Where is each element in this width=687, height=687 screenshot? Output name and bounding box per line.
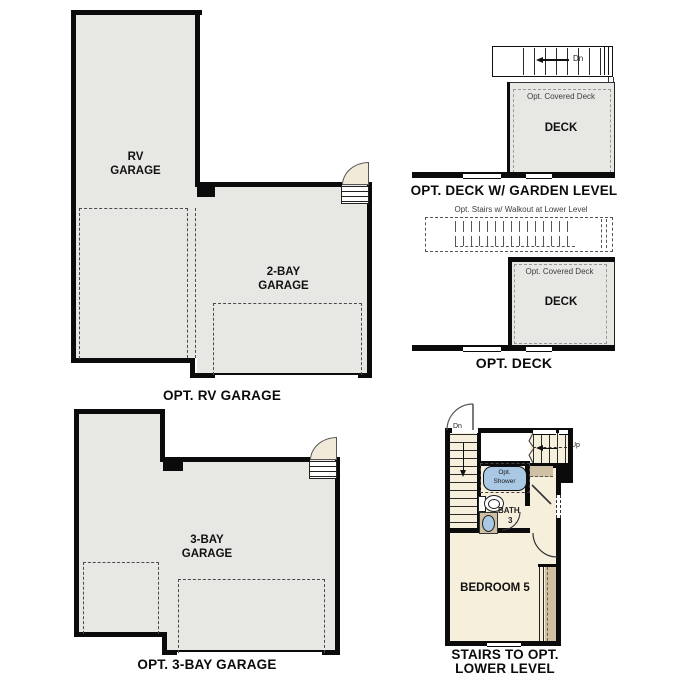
bay-dashed bbox=[83, 562, 159, 634]
two-bay-dashed bbox=[213, 303, 362, 375]
wall-segment bbox=[412, 345, 615, 351]
wall-segment bbox=[71, 10, 76, 363]
room-label-line: 2-BAY bbox=[195, 265, 372, 279]
walkout-stairs-note: Opt. Stairs w/ Walkout at Lower Level bbox=[421, 205, 621, 214]
window bbox=[463, 346, 501, 352]
wall-segment bbox=[195, 182, 342, 187]
room-label-line: RV bbox=[71, 150, 200, 164]
room-label-two-bay: 2-BAY GARAGE bbox=[195, 265, 372, 293]
floor-plan-sheet: RV GARAGE 2-BAY GARAGE OPT. RV GARAGE Dn… bbox=[0, 0, 687, 687]
dashed-stair-treads bbox=[455, 221, 575, 232]
wall-pilaster bbox=[163, 458, 183, 471]
wall-segment bbox=[74, 409, 79, 637]
plan-title-line: STAIRS TO OPT. bbox=[420, 648, 590, 662]
room-label-bedroom: BEDROOM 5 bbox=[445, 581, 545, 595]
entry-steps bbox=[341, 186, 369, 204]
wall-segment bbox=[412, 172, 615, 178]
room-label-rv-garage: RV GARAGE bbox=[71, 150, 200, 178]
plan-title-stairs-lower: STAIRS TO OPT. LOWER LEVEL bbox=[420, 648, 590, 676]
room-label-line: GARAGE bbox=[77, 547, 337, 561]
wall-pilaster bbox=[197, 185, 215, 197]
dashed-stair-rail bbox=[601, 219, 607, 248]
dashed-stair-treads bbox=[455, 236, 575, 246]
room-label-three-bay: 3-BAY GARAGE bbox=[77, 533, 337, 561]
window bbox=[526, 173, 552, 179]
door-swing-overlay bbox=[440, 395, 580, 655]
room-label-line: 3-BAY bbox=[77, 533, 337, 547]
wall-segment bbox=[160, 409, 165, 460]
plan-title-3bay: OPT. 3-BAY GARAGE bbox=[107, 657, 307, 672]
plan-title-deck: OPT. DECK bbox=[424, 355, 604, 371]
wall-segment bbox=[71, 10, 202, 15]
dashed-stair-cutline bbox=[455, 246, 575, 247]
stair-direction-line bbox=[543, 59, 569, 61]
door-swing bbox=[342, 162, 369, 185]
covered-deck-note: Opt. Covered Deck bbox=[514, 267, 605, 276]
window bbox=[463, 173, 501, 179]
plan-title-deck-garden: OPT. DECK W/ GARDEN LEVEL bbox=[399, 183, 629, 198]
room-label-line: GARAGE bbox=[71, 164, 200, 178]
wall-segment bbox=[74, 409, 165, 414]
stairs-dn-label: Dn bbox=[573, 54, 583, 63]
entry-steps bbox=[309, 461, 337, 479]
bay-dashed bbox=[178, 579, 325, 653]
door-swing bbox=[310, 437, 337, 460]
stair-treads bbox=[523, 48, 601, 75]
dashed-opening-line bbox=[187, 208, 188, 358]
plan-title-line: LOWER LEVEL bbox=[420, 662, 590, 676]
room-label-line: GARAGE bbox=[195, 279, 372, 293]
window bbox=[526, 346, 552, 352]
room-label-deck: DECK bbox=[507, 121, 615, 135]
covered-deck-note: Opt. Covered Deck bbox=[513, 92, 609, 101]
stair-direction-arrow bbox=[536, 57, 543, 63]
garage-door-opening bbox=[215, 375, 358, 378]
stair-rail bbox=[604, 47, 609, 75]
room-label-deck: DECK bbox=[508, 295, 614, 309]
rv-bay-dashed bbox=[79, 208, 188, 359]
plan-title-rv-garage: OPT. RV GARAGE bbox=[122, 388, 322, 403]
